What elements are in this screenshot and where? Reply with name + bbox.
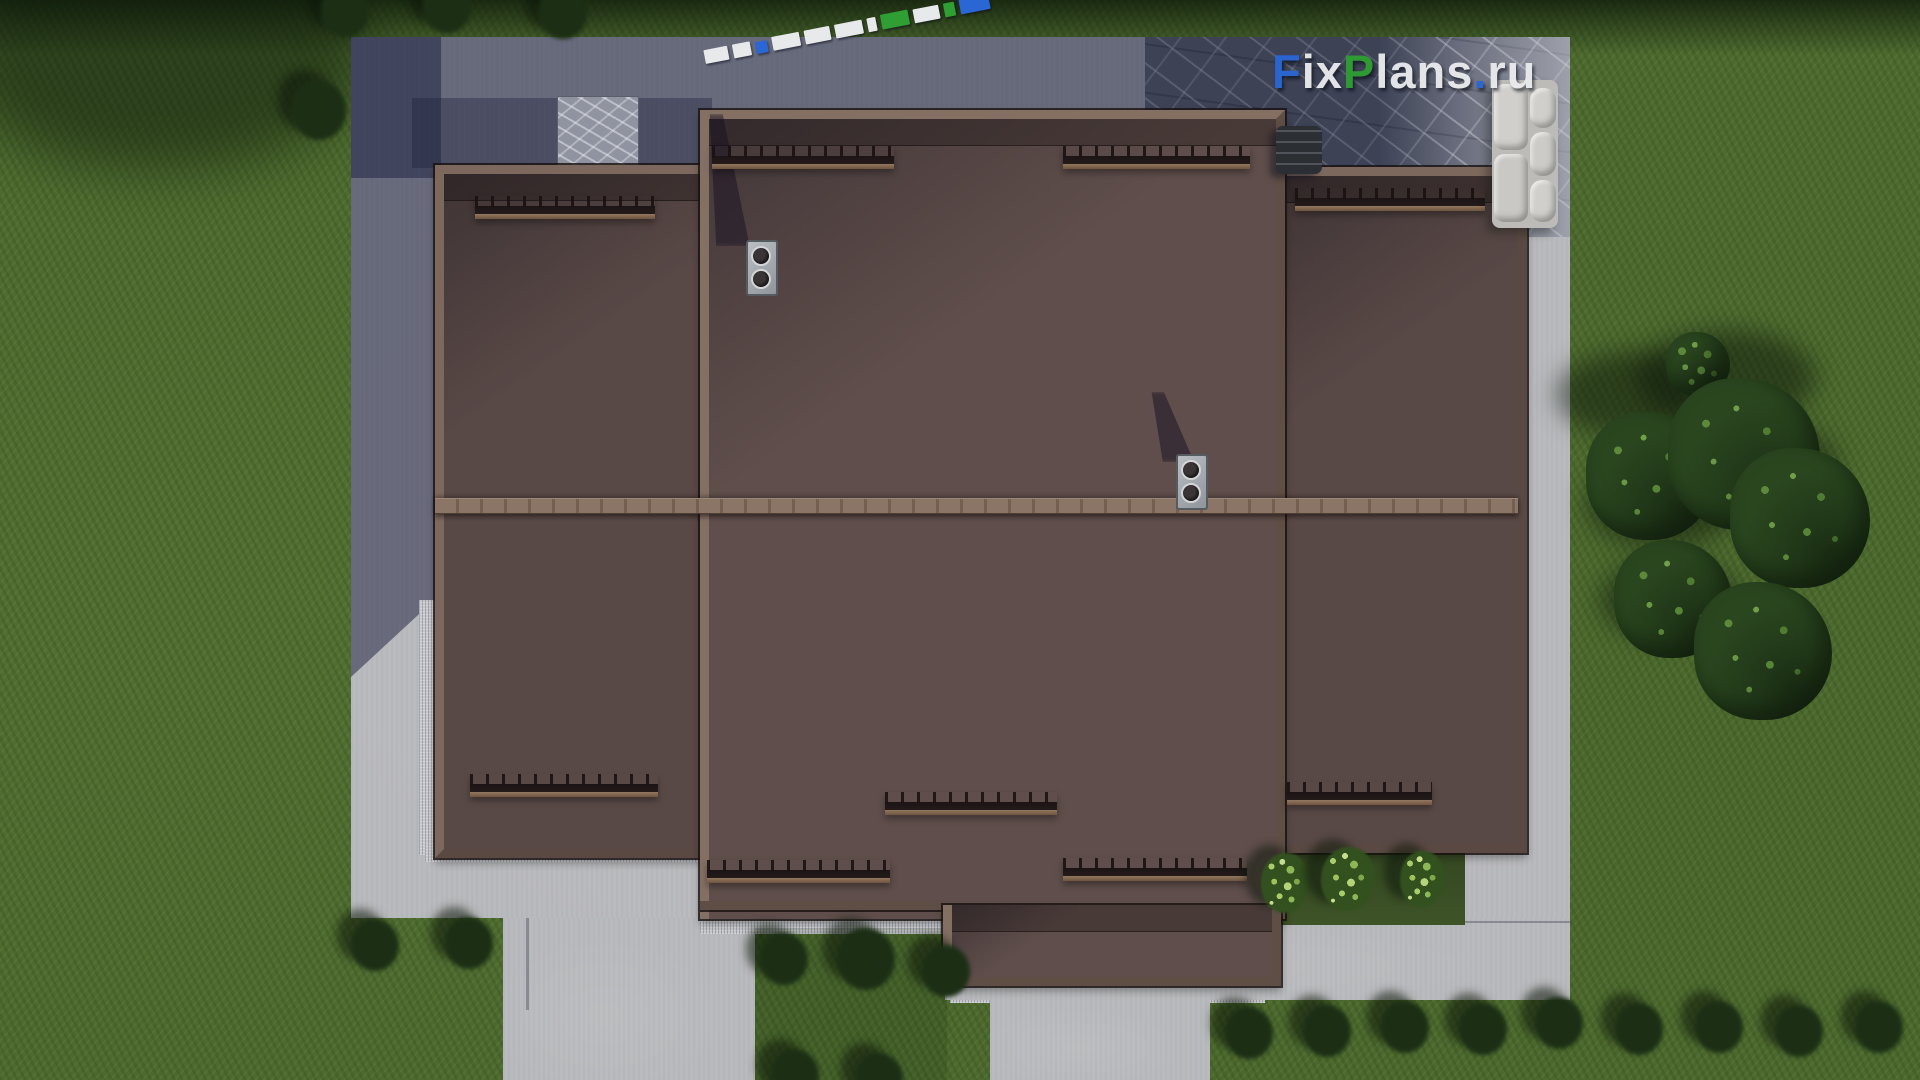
logo-letters-lans: lans [1375,45,1473,98]
flower-bush [1532,994,1586,1052]
flower-bush [442,914,496,972]
flue-opening [751,246,771,266]
logo-letters-ru: ru [1487,45,1536,98]
marker-block [771,32,801,51]
marker-block [732,41,752,58]
marker-block [943,2,956,18]
green-shrub [1398,848,1446,910]
flower-bush [919,942,973,1000]
snow-guard-rail [1063,858,1247,881]
flower-bush [1612,1000,1666,1058]
stone-block [557,96,639,168]
flower-bush [1772,1002,1826,1060]
sofa-cushion [1530,180,1556,222]
flower-bush [420,0,474,36]
logo-dot: . [1473,45,1487,98]
snow-guard-rail [470,774,658,797]
marker-block [803,26,831,45]
outdoor-sofa [1492,80,1558,228]
roof-terrace-extension [943,905,1281,986]
marker-block [703,46,729,64]
flue-opening [751,269,771,289]
snow-guard-rail [712,146,894,169]
flower-bush [1378,998,1432,1056]
flower-bush [288,76,350,144]
snow-guard-rail [1295,188,1485,211]
snow-guard-rail [707,860,890,883]
snow-guard-rail [1287,782,1432,805]
flower-bush [1852,998,1906,1056]
flower-bush [768,1046,822,1080]
logo-letters-ix: ix [1302,45,1343,98]
logo-3d-marker [706,40,1006,106]
tree-canopy [1730,448,1870,588]
flower-bush [318,0,372,40]
flower-bush [757,930,811,988]
fixplans-watermark: FixPlans.ru [1272,44,1536,99]
flower-bush [852,1050,906,1080]
path-joint-line [526,918,529,1010]
tree-canopy [1694,582,1832,720]
sofa-cushion [1494,154,1528,222]
flower-bush [1300,1002,1354,1060]
flower-bush [833,924,899,994]
green-shrub [1318,843,1378,915]
sofa-cushion [1530,132,1556,176]
roof-center-bottom-fascia [700,901,943,910]
flue-opening [1181,483,1201,503]
green-shrub [1258,850,1312,916]
roof-vent-chimney-1 [746,240,778,296]
marker-block [866,17,878,32]
flower-bush [348,916,402,974]
flower-bush [536,0,590,42]
logo-letter-p: P [1343,45,1375,98]
snow-guard-rail [885,792,1057,815]
path-bottom-exit [990,1000,1210,1080]
logo-letter-f: F [1272,45,1302,98]
snow-guard-rail [475,196,655,219]
flue-opening [1181,460,1201,480]
flower-bush [1222,1004,1276,1062]
path-left-bottom [503,918,755,1080]
flower-bush [1692,998,1746,1056]
gravel-strip-left-edge [419,600,435,855]
coffee-table [1276,126,1322,174]
roof-main-ridge [435,498,1518,514]
marker-block [755,40,769,54]
aerial-render-scene: FixPlans.ru [0,0,1920,1080]
flower-bush [1456,1000,1510,1058]
snow-guard-rail [1063,146,1250,169]
roof-vent-chimney-2 [1176,454,1208,510]
